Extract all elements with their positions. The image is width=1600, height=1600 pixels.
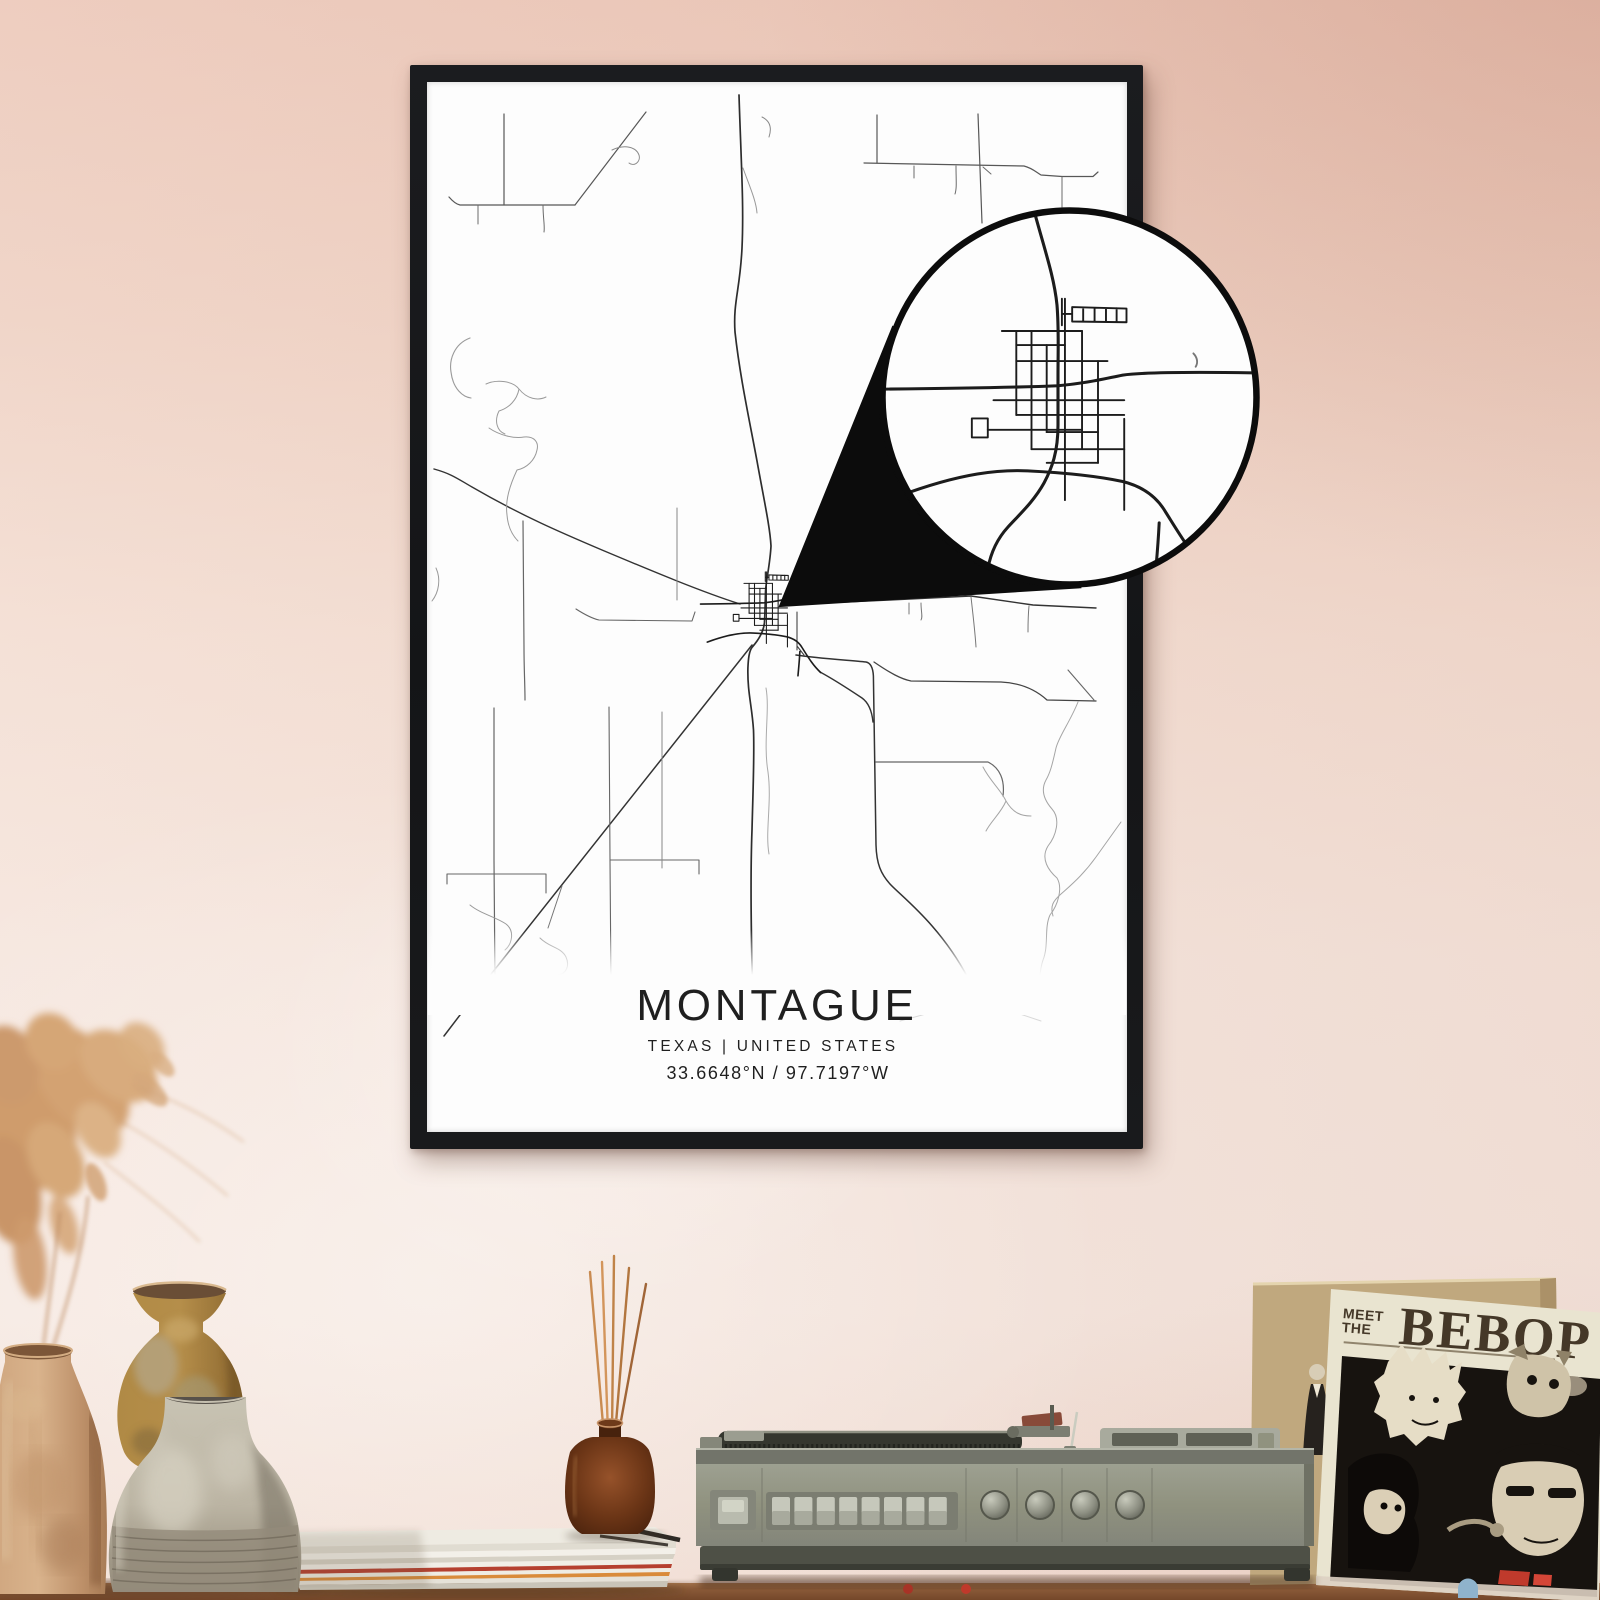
svg-text:THE: THE — [1341, 1319, 1372, 1337]
